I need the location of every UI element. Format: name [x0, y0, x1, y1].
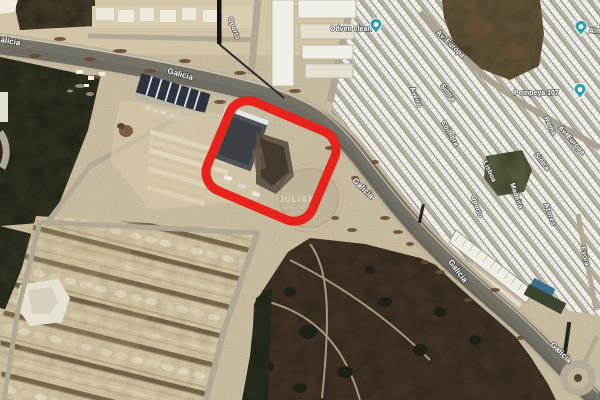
svg-text:Odven clean: Odven clean [330, 26, 372, 33]
svg-text:Pompeya 107: Pompeya 107 [514, 90, 559, 97]
svg-text:Alm: Alm [589, 28, 600, 35]
